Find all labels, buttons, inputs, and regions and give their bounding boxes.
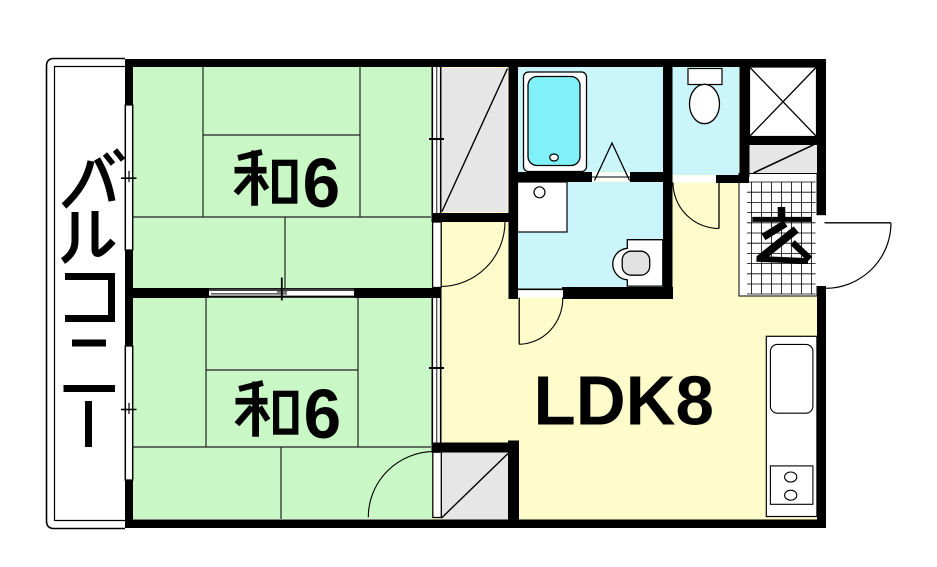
- svg-text:LDK8: LDK8: [534, 362, 715, 440]
- svg-text:6: 6: [304, 375, 342, 453]
- svg-text:6: 6: [303, 144, 341, 222]
